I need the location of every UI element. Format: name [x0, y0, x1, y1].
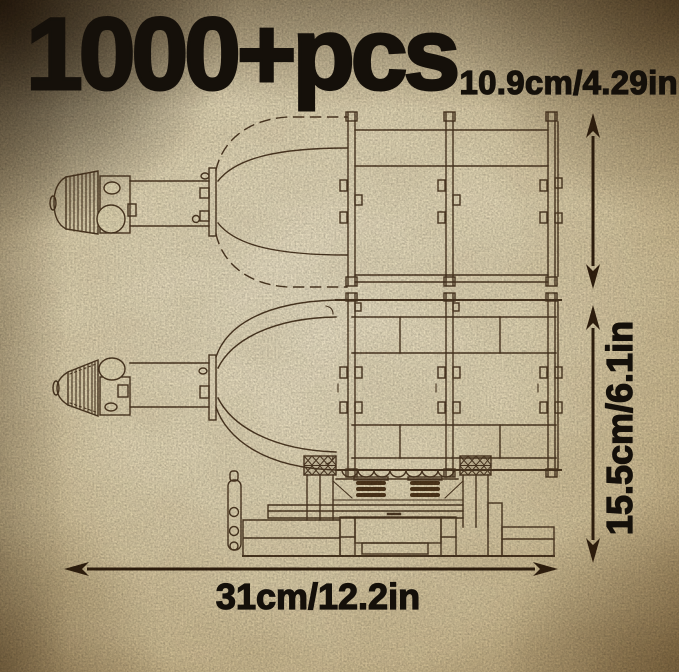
piece-count-label: 1000+pcs [26, 3, 456, 105]
length-label: 31cm/12.2in [118, 579, 518, 615]
side-view-height-label: 15.5cm/6.1in [599, 321, 641, 535]
brick-set-infographic: 1000+pcs 10.9cm/4.29in 15.5cm/6.1in 31cm… [0, 0, 679, 672]
top-view-height-label: 10.9cm/4.29in [459, 66, 678, 99]
